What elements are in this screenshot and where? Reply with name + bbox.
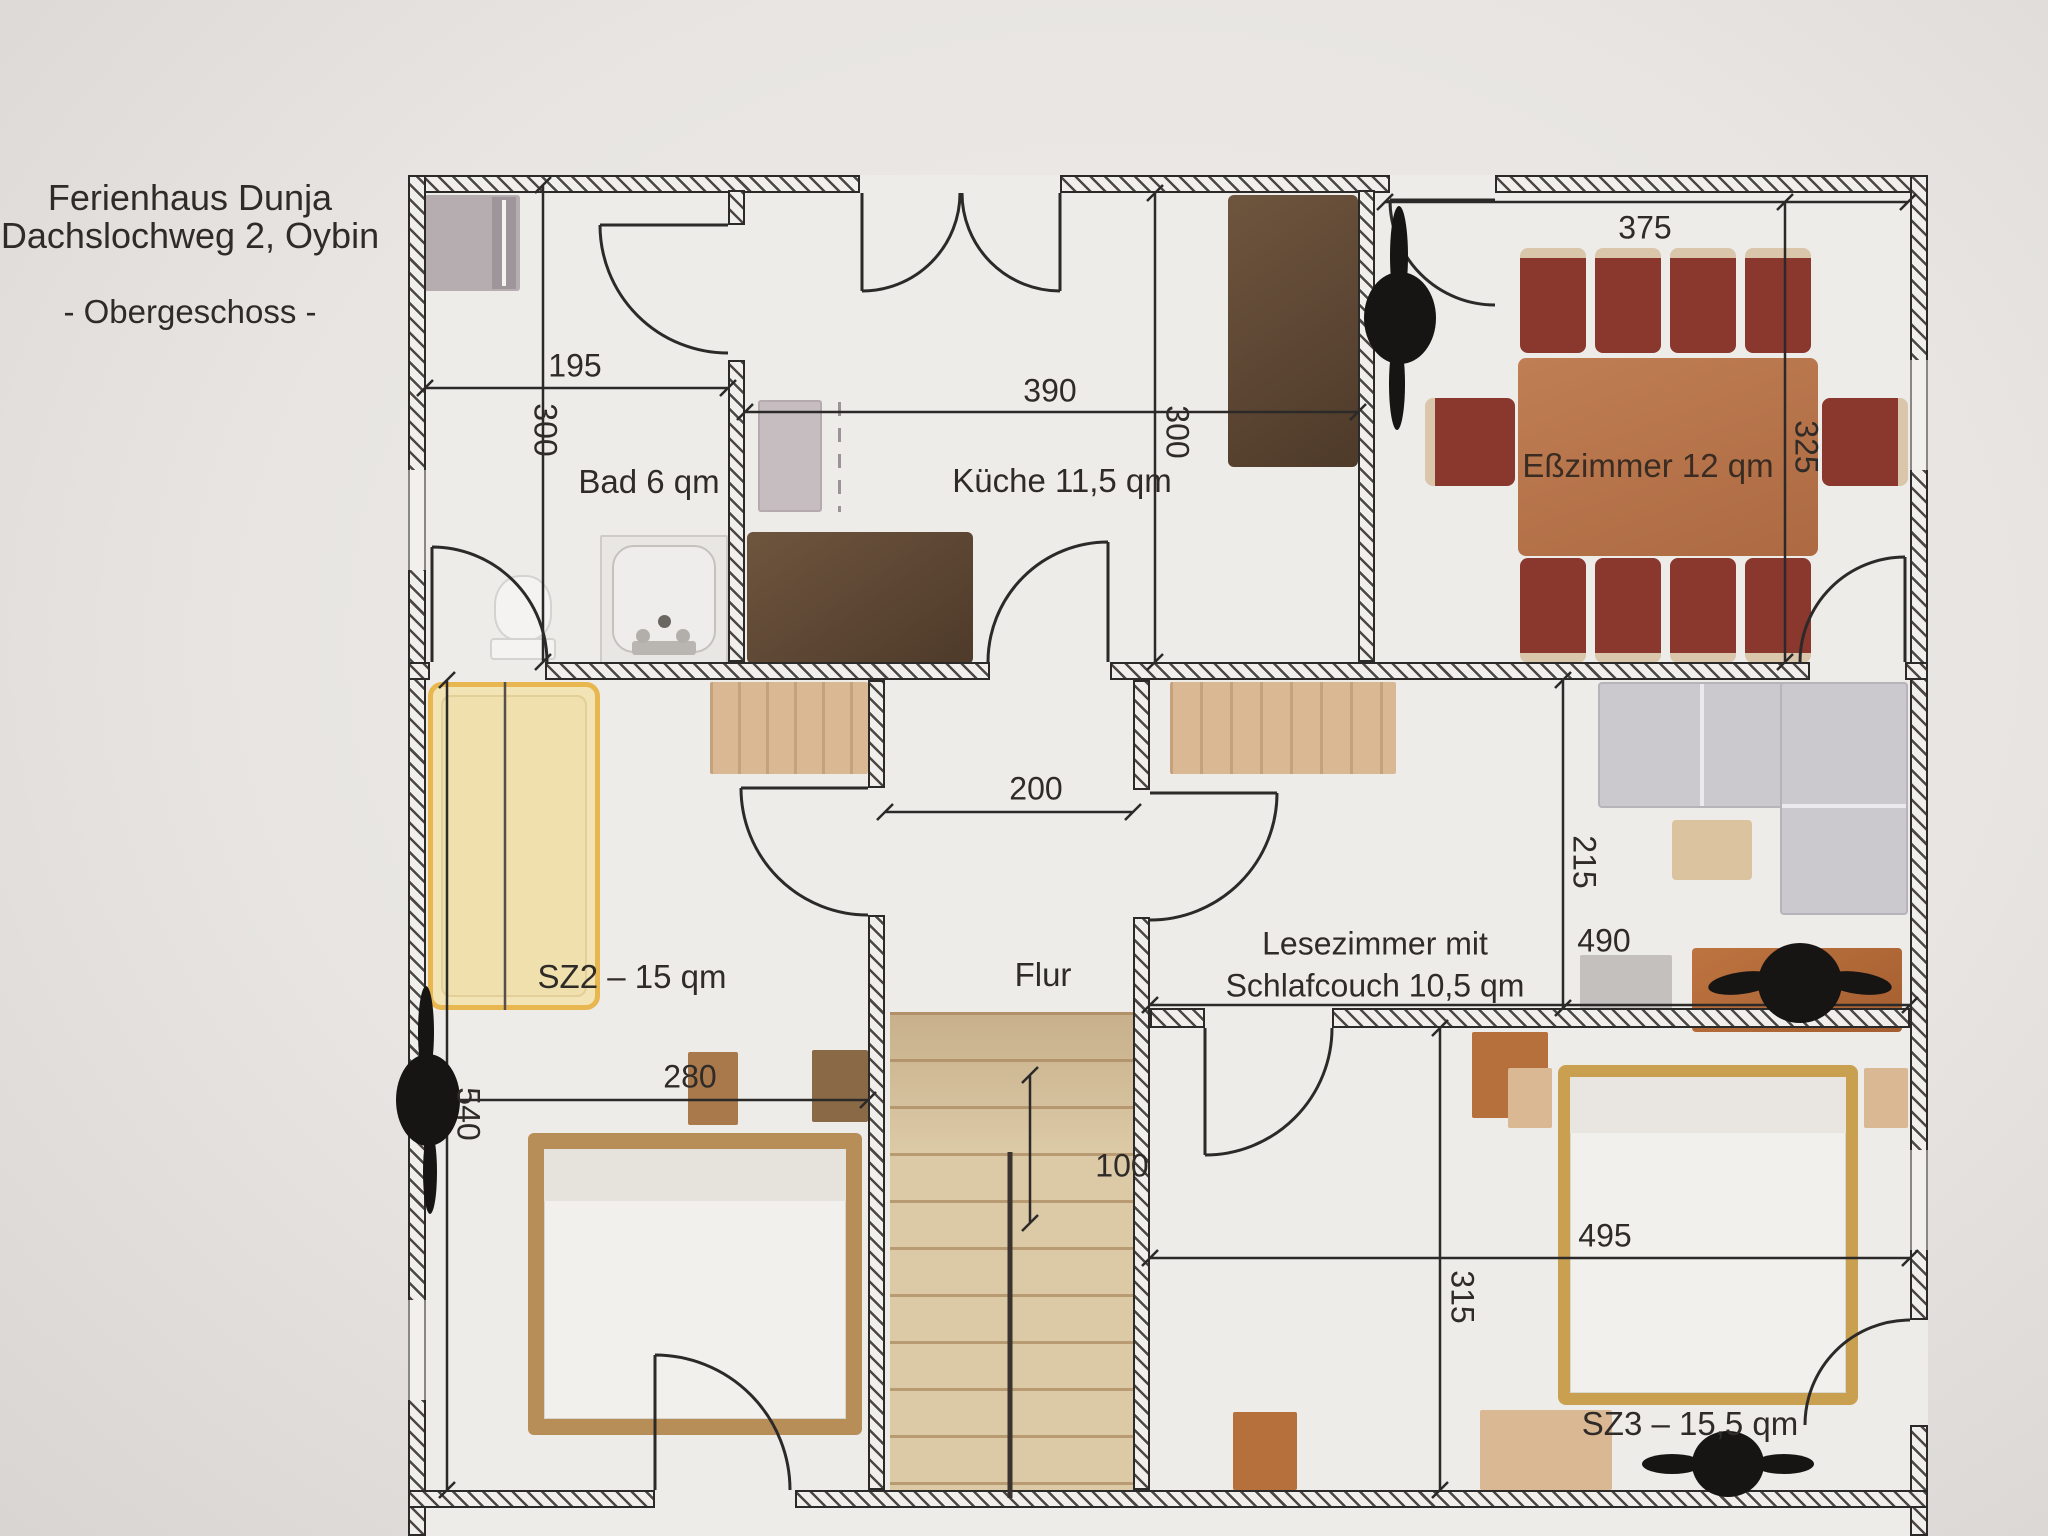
dim-lese-width: 490 <box>1577 923 1630 960</box>
dim-kueche-height: 300 <box>1159 405 1196 458</box>
dim-flur-stair: 100 <box>1095 1148 1148 1185</box>
dimline-sz3-width <box>1142 1250 1918 1266</box>
plant-icon-esszimmer <box>1364 206 1436 430</box>
door-sz2 <box>741 788 868 915</box>
room-label-lesezimmer-2: Schlafcouch 10,5 qm <box>1226 968 1525 1005</box>
office-chair-icon <box>1707 943 1893 1023</box>
door-esszimmer-bottom <box>1800 557 1905 662</box>
dim-bad-width: 195 <box>548 348 601 385</box>
dim-kueche-width: 390 <box>1023 373 1076 410</box>
dim-sz2-width: 280 <box>663 1059 716 1096</box>
door-bad-lower <box>432 547 547 662</box>
dim-sz2-height: 540 <box>450 1087 487 1140</box>
room-label-esszimmer: Eßzimmer 12 qm <box>1522 447 1773 485</box>
room-label-bad: Bad 6 qm <box>578 463 719 501</box>
door-sz3-top <box>1205 1028 1332 1155</box>
dim-ess-height: 325 <box>1788 420 1825 473</box>
door-kueche-balcony-double <box>862 193 1060 291</box>
door-lesezimmer <box>1150 793 1277 920</box>
room-label-sz3: SZ3 – 15,5 qm <box>1582 1405 1798 1443</box>
dim-flur-width: 200 <box>1009 771 1062 808</box>
room-label-sz2: SZ2 – 15 qm <box>538 958 727 996</box>
door-sz2-bottom <box>655 1355 790 1490</box>
floorplan-photo: Ferienhaus Dunja Dachslochweg 2, Oybin -… <box>0 0 2048 1536</box>
room-label-flur: Flur <box>1015 956 1072 994</box>
room-label-kueche: Küche 11,5 qm <box>952 462 1172 500</box>
dimline-ess-width <box>1377 194 1916 210</box>
door-sz3-right <box>1805 1320 1910 1425</box>
dimline-flur-stair <box>1022 1067 1038 1231</box>
dim-sz3-height: 315 <box>1444 1270 1481 1323</box>
dim-ess-width: 375 <box>1618 210 1671 247</box>
door-kueche-flur <box>988 542 1108 662</box>
dim-sz3-width: 495 <box>1578 1218 1631 1255</box>
dim-lese-height: 215 <box>1566 835 1603 888</box>
room-label-lesezimmer-1: Lesezimmer mit <box>1262 926 1488 963</box>
door-bad <box>600 225 728 353</box>
dim-bad-height: 300 <box>527 403 564 456</box>
plan-linework <box>0 0 2048 1536</box>
